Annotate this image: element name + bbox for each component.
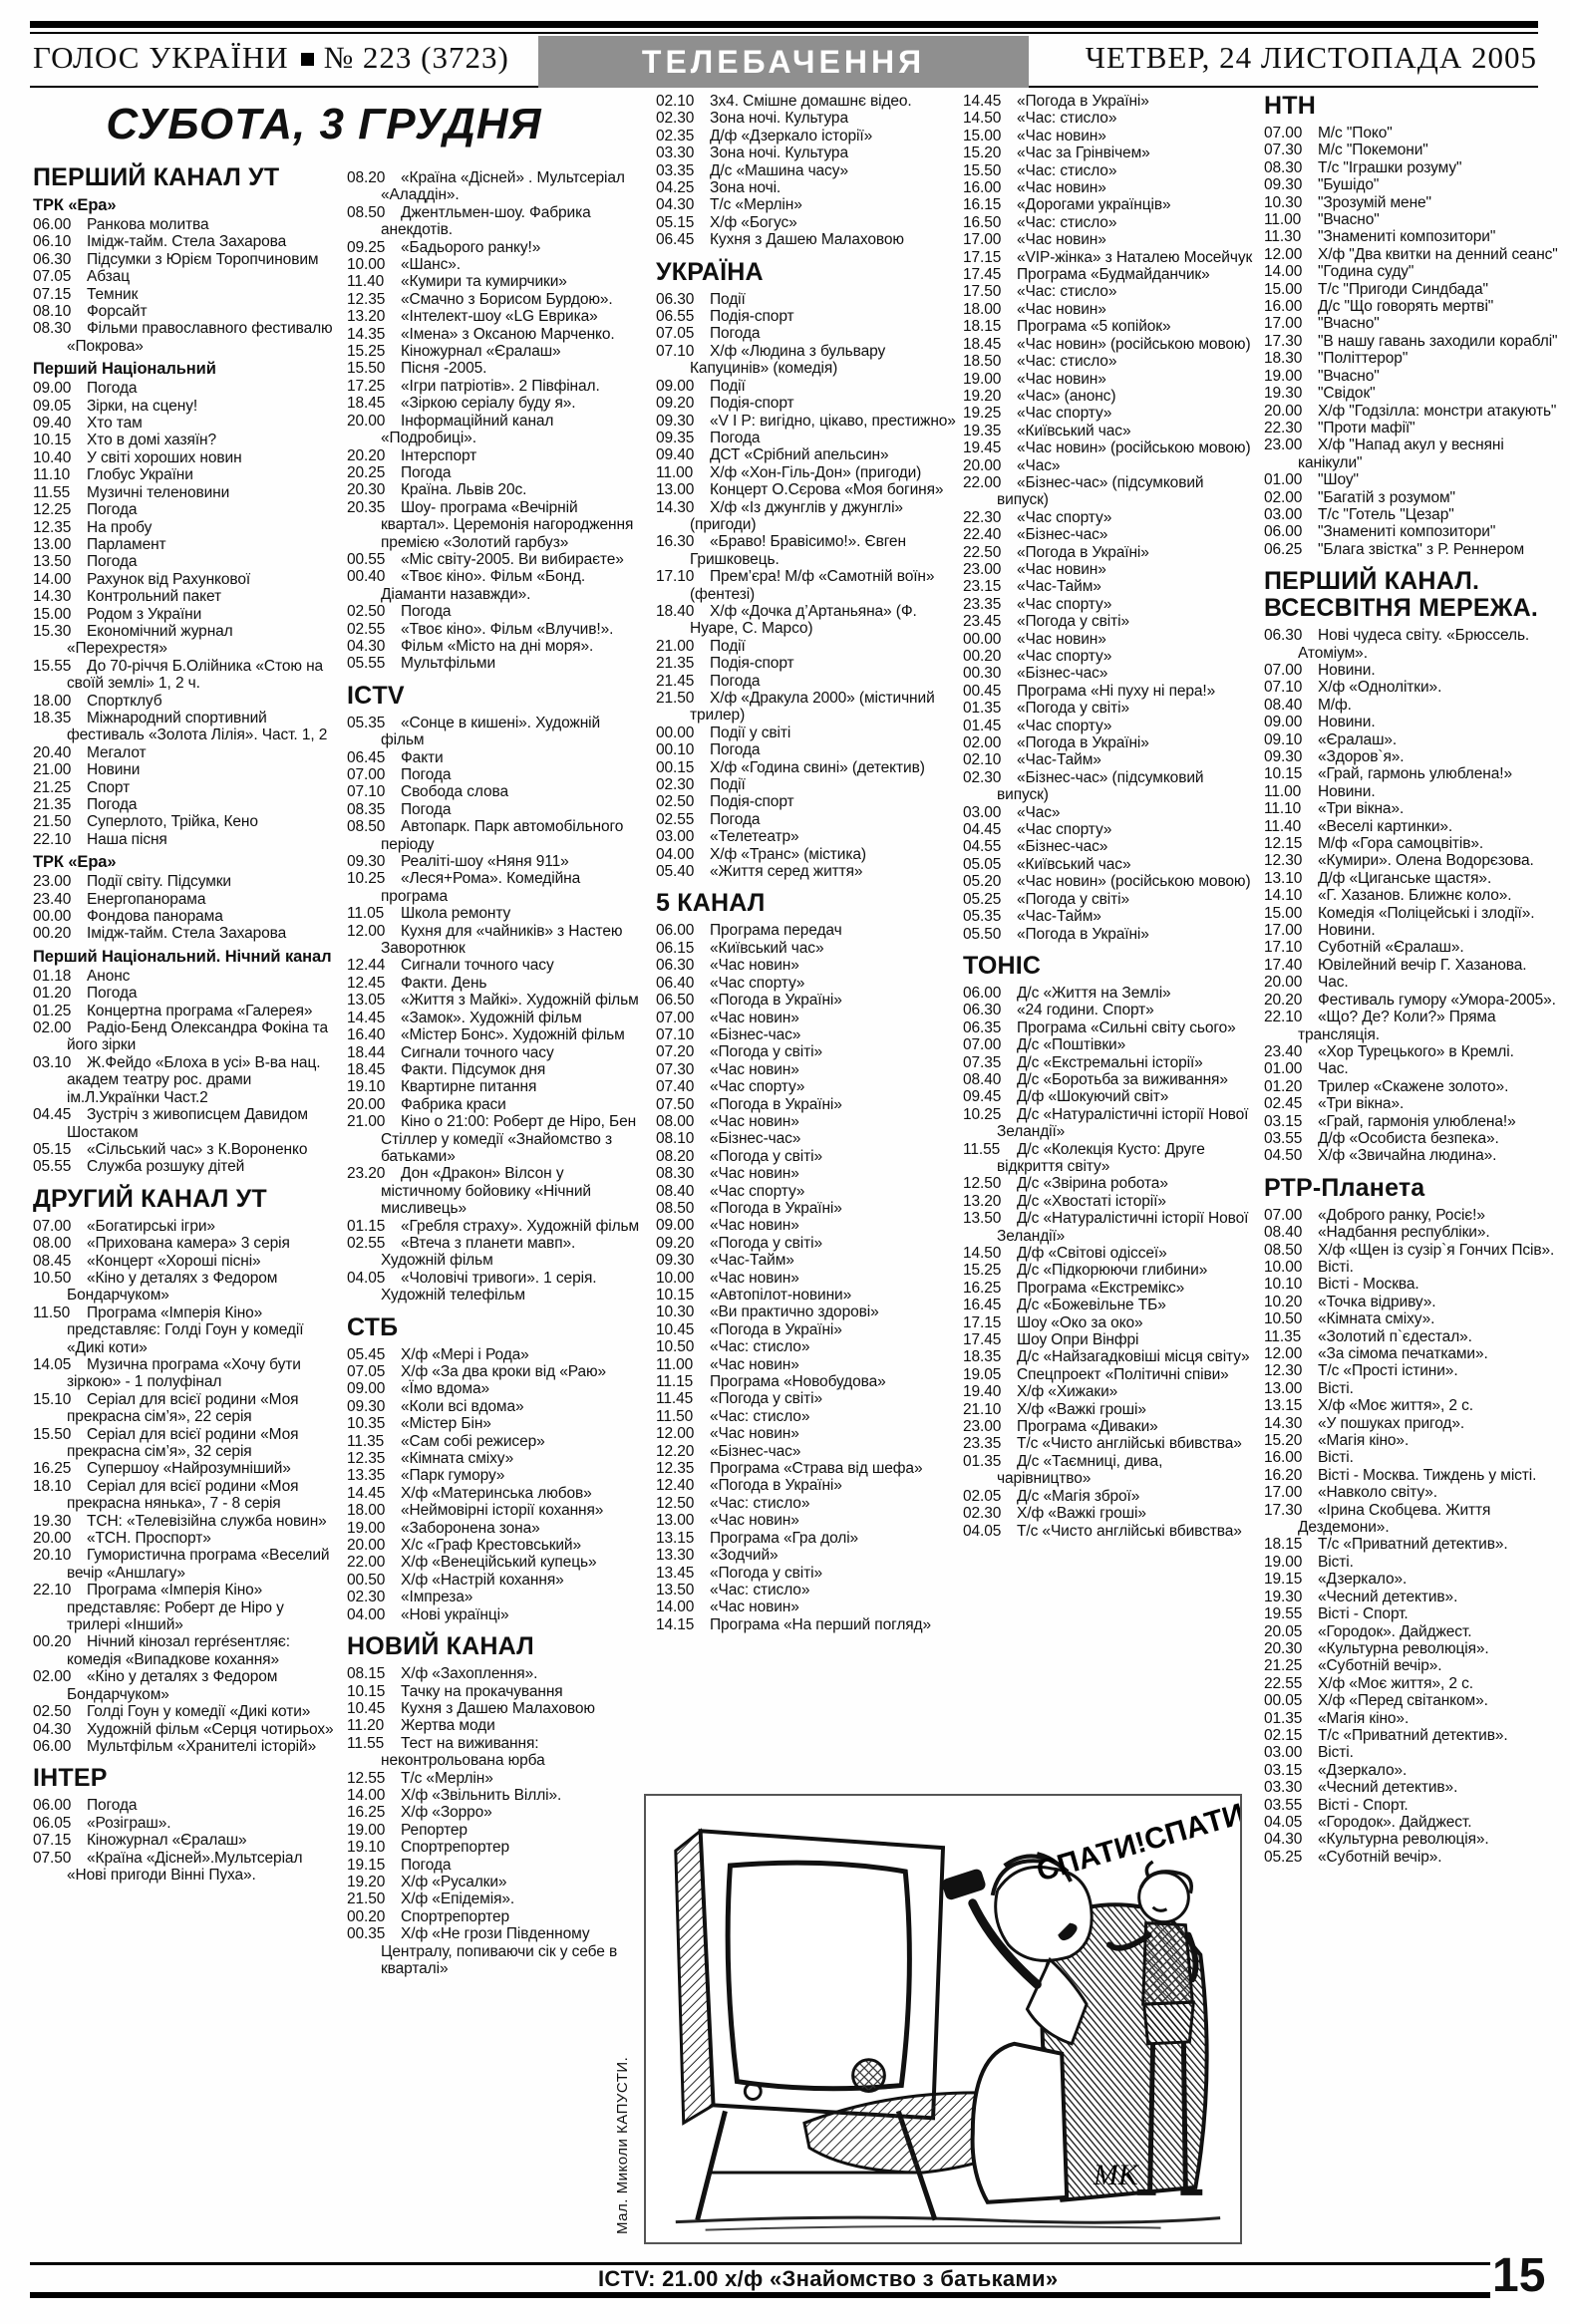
listing-time: 15.20 <box>1264 1432 1318 1449</box>
channel-header: 5 КАНАЛ <box>656 890 959 917</box>
listing-item: 16.00Д/с "Що говорять мертві" <box>1264 298 1565 315</box>
listing-time: 06.30 <box>33 251 87 268</box>
listing-title: Суперлото, Трійка, Кено <box>87 813 258 830</box>
listing-time: 12.30 <box>1264 1362 1318 1379</box>
listing-item: 07.00«Богатирські ігри» <box>33 1218 336 1235</box>
listing-time: 10.50 <box>33 1270 87 1287</box>
listing-time: 01.00 <box>1264 1060 1318 1077</box>
listing-item: 08.10«Бізнес-час» <box>656 1130 959 1147</box>
listing-item: 02.00«Кіно у деталях з Федором Бондарчук… <box>33 1668 336 1703</box>
listing-time: 13.20 <box>347 308 401 325</box>
listing-item: 08.45«Концерт «Хороші пісні» <box>33 1253 336 1270</box>
listing-item: 12.35«Кімната сміху» <box>347 1450 643 1467</box>
listing-time: 15.25 <box>963 1262 1017 1279</box>
listing-title: Програма «Новобудова» <box>710 1373 886 1390</box>
listing-title: Імідж-тайм. Стела Захарова <box>87 233 286 250</box>
listing-time: 22.00 <box>963 474 1017 491</box>
listing-time: 09.10 <box>1264 731 1318 748</box>
listing-title: Наша пісня <box>87 831 167 848</box>
listing-title: «Г. Хазанов. Ближнє коло». <box>1318 887 1512 904</box>
listing-title: «Точка відриву». <box>1318 1294 1435 1310</box>
listing-item: 01.35Д/с «Таємниці, дива, чарівництво» <box>963 1453 1256 1488</box>
listing-title: «Чоловічі тривоги». 1 серія. Художній те… <box>381 1270 596 1304</box>
listing-title: Х/ф «Епідемія». <box>401 1890 514 1907</box>
listing-item: 21.35Подія-спорт <box>656 655 959 672</box>
listing-item: 02.30Х/ф «Важкі гроші» <box>963 1505 1256 1522</box>
listing-title: Д/ф «Циганське щастя». <box>1318 870 1491 887</box>
listing-time: 22.30 <box>963 509 1017 526</box>
listing-item: 04.30Художній фільм «Серця чотирьох» <box>33 1721 336 1738</box>
listing-time: 17.15 <box>963 1314 1017 1331</box>
listing-time: 23.00 <box>33 873 87 890</box>
listing-time: 05.50 <box>963 926 1017 943</box>
listing-title: «Доброго ранку, Росіє!» <box>1318 1207 1485 1224</box>
listing-time: 00.20 <box>347 1908 401 1925</box>
listing-title: Інформаційний канал «Подробиці». <box>381 413 553 446</box>
listing-title: Програма «Ні пуху ні пера!» <box>1017 683 1215 700</box>
listing-title: «Містер Бонс». Художній фільм <box>401 1026 625 1043</box>
listing-title: «Культурна революція». <box>1318 1831 1489 1848</box>
listing-time: 07.50 <box>656 1096 710 1113</box>
listing-item: 10.25«Леся+Рома». Комедійна програма <box>347 870 643 905</box>
listing-item: 20.35Шоу- програма «Вечірній квартал». Ц… <box>347 499 643 551</box>
cartoon-illustration: СПАТИ!СПАТИ! МК <box>646 1796 1240 2242</box>
listing-title: «Дзеркало». <box>1318 1571 1407 1588</box>
listing-title: Абзац <box>87 268 130 285</box>
listing-title: «Час новин» <box>710 1512 799 1529</box>
listing-title: «Час новин» <box>1017 371 1106 388</box>
listing-item: 15.25Д/с «Підкорюючи глибини» <box>963 1262 1256 1279</box>
listing-time: 20.20 <box>1264 992 1318 1009</box>
listing-item: 17.40Ювілейний вечір Г. Хазанова. <box>1264 957 1565 974</box>
listing-time: 17.00 <box>963 231 1017 248</box>
listing-item: 01.35«Магія кіно». <box>1264 1710 1565 1727</box>
listing-title: Програма «Будмайданчик» <box>1017 266 1210 283</box>
listing-time: 10.30 <box>656 1304 710 1320</box>
listing-time: 23.35 <box>963 1435 1017 1452</box>
listing-title: «Країна «Дісней» . Мультсеріал «Аладдін»… <box>381 169 625 203</box>
listing-item: 23.40Енергопанорама <box>33 891 336 908</box>
listing-time: 09.30 <box>1264 176 1318 193</box>
listing-item: 19.00«Час новин» <box>963 371 1256 388</box>
listing-time: 14.30 <box>33 588 87 605</box>
listing-title: «Час спорту» <box>710 975 804 992</box>
listing-time: 21.00 <box>33 761 87 778</box>
listing-time: 12.30 <box>1264 852 1318 869</box>
listing-title: «Браво! Бравісимо!». Євген Гришковець. <box>690 533 906 567</box>
listing-time: 01.35 <box>963 700 1017 717</box>
listing-title: Тест на виживання: неконтрольована юрба <box>381 1735 545 1769</box>
listing-item: 11.15Програма «Новобудова» <box>656 1373 959 1390</box>
listing-title: «Час новин» <box>710 1113 799 1130</box>
listing-title: «Погода в Україні» <box>1017 926 1149 943</box>
listing-title: На пробу <box>87 519 152 536</box>
listing-title: «Бадьорого ранку!» <box>401 239 540 256</box>
listing-title: Контрольний пакет <box>87 588 221 605</box>
listing-item: 08.30Т/с "Іграшки розуму" <box>1264 159 1565 176</box>
footer-highlight-band: ICTV: 21.00 х/ф «Знайомство з батьками» <box>30 2262 1490 2298</box>
listing-title: Д/с «Колекція Кусто: Друге відкриття сві… <box>997 1141 1205 1175</box>
listing-time: 05.25 <box>963 891 1017 908</box>
listing-item: 01.45«Час спорту» <box>963 718 1256 734</box>
listing-title: Програма «Імперія Кіно» представляє: Гол… <box>67 1305 303 1356</box>
listing-time: 22.10 <box>33 831 87 848</box>
listing-time: 00.35 <box>347 1925 401 1942</box>
listing-title: Нові чудеса світу. «Брюссель. Атоміум». <box>1298 627 1529 661</box>
listing-item: 07.05Погода <box>656 325 959 342</box>
listing-title: Ранкова молитва <box>87 216 209 233</box>
listing-time: 02.55 <box>347 621 401 638</box>
listing-time: 04.05 <box>347 1270 401 1287</box>
listing-title: Спорт <box>87 779 130 796</box>
listing-time: 10.15 <box>1264 765 1318 782</box>
listing-title: Т/с «Мерлін» <box>401 1770 493 1787</box>
listing-title: «Час новин» <box>1017 128 1106 145</box>
listing-time: 08.20 <box>656 1148 710 1165</box>
listing-title: «Погода у світі» <box>710 1565 822 1582</box>
listing-time: 14.35 <box>347 326 401 343</box>
listing-title: Подія-спорт <box>710 395 794 412</box>
listing-time: 10.45 <box>347 1700 401 1717</box>
listing-time: 11.35 <box>347 1433 401 1450</box>
listing-item: 13.50«Час: стисло» <box>656 1582 959 1598</box>
listing-item: 20.00Час. <box>1264 974 1565 991</box>
listing-time: 14.50 <box>963 1245 1017 1262</box>
listing-title: Художній фільм «Серця чотирьох» <box>87 1721 334 1738</box>
listing-item: 21.50Суперлото, Трійка, Кено <box>33 813 336 830</box>
listing-time: 17.40 <box>1264 957 1318 974</box>
listing-time: 11.50 <box>33 1305 87 1321</box>
listing-item: 15.00«Час новин» <box>963 128 1256 145</box>
listing-time: 14.50 <box>963 110 1017 127</box>
listing-time: 02.30 <box>347 1589 401 1605</box>
listing-time: 21.35 <box>656 655 710 672</box>
listing-title: Х/с «Граф Крестовський» <box>401 1537 581 1554</box>
listing-time: 00.00 <box>33 908 87 925</box>
listing-item: 07.50«Країна «Дісней».Мультсеріал «Нові … <box>33 1850 336 1885</box>
listing-item: 15.00Родом з України <box>33 606 336 623</box>
listing-item: 05.25«Погода у світі» <box>963 891 1256 908</box>
listing-time: 08.35 <box>347 801 401 818</box>
listing-time: 22.00 <box>347 1554 401 1571</box>
listing-time: 02.35 <box>656 128 710 145</box>
listing-title: Д/ф «Особиста безпека». <box>1318 1130 1499 1147</box>
listing-title: «Коли всі вдома» <box>401 1398 524 1415</box>
listing-item: 09.25«Бадьорого ранку!» <box>347 239 643 256</box>
listing-item: 08.35Погода <box>347 801 643 818</box>
listing-time: 04.30 <box>347 638 401 655</box>
listing-time: 19.00 <box>347 1520 401 1537</box>
listing-item: 11.40«Кумири та кумирчики» <box>347 273 643 290</box>
listing-title: Кухня для «чайників» з Настею Заворотнюк <box>381 923 622 957</box>
listing-time: 09.20 <box>656 395 710 412</box>
listing-item: 17.25«Ігри патріотів». 2 Півфінал. <box>347 378 643 395</box>
listing-item: 10.00«Час новин» <box>656 1270 959 1287</box>
listing-time: 12.50 <box>656 1495 710 1512</box>
listing-item: 20.30«Культурна революція». <box>1264 1640 1565 1657</box>
listing-title: «Час: стисло» <box>710 1495 809 1512</box>
listing-item: 22.00Х/ф «Венеційський купець» <box>347 1554 643 1571</box>
listing-item: 04.05«Чоловічі тривоги». 1 серія. Художн… <box>347 1270 643 1305</box>
listing-item: 14.00"Година суду" <box>1264 263 1565 280</box>
listing-time: 21.35 <box>33 796 87 813</box>
listing-title: Шоу Опри Вінфрі <box>1017 1331 1138 1348</box>
listing-time: 00.20 <box>33 1633 87 1650</box>
listing-item: 11.00«Час новин» <box>656 1356 959 1373</box>
listing-title: «Час новин» <box>710 1598 799 1615</box>
listing-item: 09.30«Здоров`я». <box>1264 748 1565 765</box>
channel-header: РТР-Планета <box>1264 1175 1565 1202</box>
listing-title: Трилер «Скажене золото». <box>1318 1078 1508 1095</box>
listing-title: Кухня з Дашею Малаховою <box>401 1700 595 1717</box>
listing-title: «Погода в Україні» <box>710 1477 842 1494</box>
listing-item: 19.15Погода <box>347 1857 643 1874</box>
listing-item: 09.00Новини. <box>1264 714 1565 730</box>
listing-title: Супершоу «Найрозумніший» <box>87 1460 291 1477</box>
listing-time: 07.10 <box>656 1026 710 1043</box>
listing-time: 10.15 <box>656 1287 710 1304</box>
listing-time: 23.35 <box>963 596 1017 613</box>
listing-time: 21.50 <box>347 1890 401 1907</box>
section-subheader: ТРК «Ера» <box>33 196 336 214</box>
listings-column-1: ПЕРШИЙ КАНАЛ УТТРК «Ера»06.00Ранкова мол… <box>33 164 336 1884</box>
listing-item: 21.00Новини <box>33 761 336 778</box>
listing-title: «Бізнес-час» <box>1017 526 1107 543</box>
listing-title: Вісті. <box>1318 1380 1354 1397</box>
listing-title: Комедія «Поліцейські і злодії». <box>1318 905 1534 922</box>
listing-item: 07.30«Час новин» <box>656 1061 959 1078</box>
listing-time: 05.20 <box>963 873 1017 890</box>
listing-title: «VIP-жінка» з Наталею Мосейчук <box>1017 249 1252 266</box>
listing-item: 13.00Вісті. <box>1264 1380 1565 1397</box>
listing-item: 04.50Х/ф «Звичайна людина». <box>1264 1147 1565 1164</box>
listing-title: «Золотий п`єдестал». <box>1318 1328 1472 1345</box>
listing-item: 19.00«Заборонена зона» <box>347 1520 643 1537</box>
listing-title: «Час новин» <box>710 1270 799 1287</box>
listing-title: Фільм «Місто на дні моря». <box>401 638 593 655</box>
listing-item: 07.15Кіножурнал «Єралаш» <box>33 1832 336 1849</box>
listing-title: Х/ф «Однолітки». <box>1318 679 1441 696</box>
listing-item: 09.10«Єралаш». <box>1264 731 1565 748</box>
listing-title: Глобус України <box>87 466 193 483</box>
listing-title: Х/ф «Звичайна людина». <box>1318 1147 1496 1164</box>
listing-time: 19.55 <box>1264 1605 1318 1622</box>
listing-time: 09.40 <box>656 446 710 463</box>
listing-item: 07.00Д/с «Поштівки» <box>963 1036 1256 1053</box>
listing-title: «Час: стисло» <box>1017 110 1116 127</box>
listing-title: «Час новин» <box>710 1356 799 1373</box>
listing-time: 21.25 <box>33 779 87 796</box>
listing-item: 17.10Суботній «Єралаш». <box>1264 939 1565 956</box>
listing-title: Темник <box>87 286 138 303</box>
listing-time: 11.45 <box>656 1390 710 1407</box>
listing-title: Новини. <box>1318 922 1376 939</box>
listing-time: 13.50 <box>656 1582 710 1598</box>
listing-time: 18.00 <box>347 1502 401 1519</box>
listing-title: «Грай, гармонь улюблена!» <box>1318 765 1512 782</box>
listing-item: 20.25Погода <box>347 464 643 481</box>
listing-title: Пісня -2005. <box>401 360 486 377</box>
listing-time: 15.30 <box>33 623 87 640</box>
listing-item: 18.35Міжнародний спортивний фестиваль «З… <box>33 710 336 744</box>
listing-item: 07.10Х/ф «Однолітки». <box>1264 679 1565 696</box>
listing-title: «Зодчий» <box>710 1547 779 1564</box>
viewer-figure <box>941 1854 1093 2044</box>
listing-title: М/с "Покемони" <box>1318 142 1428 158</box>
listing-item: 07.00«Доброго ранку, Росіє!» <box>1264 1207 1565 1224</box>
listing-time: 06.55 <box>656 308 710 325</box>
listing-item: 09.30Реаліті-шоу «Няня 911» <box>347 853 643 870</box>
listing-time: 06.00 <box>1264 523 1318 540</box>
listing-item: 09.30«V I P: вигідно, цікаво, престижно» <box>656 413 959 430</box>
listing-item: 18.15Т/с «Приватний детектив». <box>1264 1536 1565 1553</box>
top-rule-thin <box>30 32 1538 34</box>
listing-item: 15.10Серіал для всієї родини «Моя прекра… <box>33 1391 336 1426</box>
listing-item: 07.00Новини. <box>1264 662 1565 679</box>
listing-title: Т/с «Приватний детектив». <box>1318 1727 1508 1744</box>
listing-item: 06.00Ранкова молитва <box>33 216 336 233</box>
listing-time: 21.25 <box>1264 1657 1318 1674</box>
listing-item: 16.15«Дорогами українців» <box>963 196 1256 213</box>
listing-time: 04.50 <box>1264 1147 1318 1164</box>
listing-item: 19.30«Чесний детектив». <box>1264 1589 1565 1605</box>
listing-item: 16.45Д/с «Божевільне ТБ» <box>963 1297 1256 1313</box>
listing-item: 15.00Т/с "Пригоди Синдбада" <box>1264 281 1565 298</box>
listing-title: Х/ф «Людина з бульвару Капуцинів» (комед… <box>690 343 885 377</box>
listing-item: 02.50Голді Гоун у комедії «Дикі коти» <box>33 1703 336 1720</box>
listing-item: 19.05Спецпроект «Політичні співи» <box>963 1366 1256 1383</box>
listing-title: «Київський час» <box>710 940 823 957</box>
listing-time: 13.00 <box>656 1512 710 1529</box>
listing-title: «Час спорту» <box>1017 509 1111 526</box>
listing-item: 08.50Х/ф «Щен із сузір`я Гончих Псів». <box>1264 1242 1565 1259</box>
listing-item: 10.25Д/с «Натуралістичні історії Нової З… <box>963 1106 1256 1141</box>
listing-item: 06.00Д/с «Життя на Землі» <box>963 985 1256 1002</box>
listing-item: 03.00«Телетеатр» <box>656 828 959 845</box>
listing-item: 12.25Погода <box>33 501 336 518</box>
listing-time: 05.25 <box>1264 1849 1318 1866</box>
listing-time: 13.10 <box>1264 870 1318 887</box>
listing-time: 16.25 <box>963 1280 1017 1297</box>
listing-item: 12.15М/ф «Гора самоцвітів». <box>1264 835 1565 852</box>
listing-title: «Кумири». Олена Водорєзова. <box>1318 852 1534 869</box>
listing-time: 01.20 <box>33 985 87 1002</box>
listing-title: Т/с "Готель "Цезар" <box>1318 506 1454 523</box>
listing-item: 10.50«Час: стисло» <box>656 1338 959 1355</box>
listing-time: 10.00 <box>347 256 401 273</box>
listing-item: 17.45Шоу Опри Вінфрі <box>963 1331 1256 1348</box>
listing-title: «Чесний детектив». <box>1318 1589 1457 1605</box>
listing-title: Форсайт <box>87 303 147 320</box>
listing-item: 19.10Квартирне питання <box>347 1078 643 1095</box>
listing-title: «Час спорту» <box>710 1078 804 1095</box>
listing-item: 10.50«Кіно у деталях з Федором Бондарчук… <box>33 1270 336 1305</box>
listing-time: 02.50 <box>33 1703 87 1720</box>
listing-time: 17.00 <box>1264 1484 1318 1501</box>
listing-time: 19.00 <box>963 371 1017 388</box>
listing-item: 07.50«Погода в Україні» <box>656 1096 959 1113</box>
listing-time: 13.05 <box>347 992 401 1009</box>
listing-title: "Свідок" <box>1318 385 1376 402</box>
listing-time: 17.30 <box>1264 1502 1318 1519</box>
listing-time: 11.10 <box>33 466 87 483</box>
listing-title: «Час-Тайм» <box>1017 751 1101 768</box>
listing-time: 05.55 <box>33 1158 87 1175</box>
listing-item: 09.20«Погода у світі» <box>656 1235 959 1252</box>
listing-item: 17.50«Час: стисло» <box>963 283 1256 300</box>
listing-time: 20.30 <box>347 481 401 498</box>
listing-time: 15.00 <box>963 128 1017 145</box>
listing-time: 10.40 <box>33 449 87 466</box>
listing-item: 05.35«Сонце в кишені». Художній фільм <box>347 715 643 749</box>
listing-time: 16.45 <box>963 1297 1017 1313</box>
listing-title: Кіно о 21:00: Роберт де Ніро, Бен Стілле… <box>381 1113 636 1165</box>
listing-title: «Погода у світі» <box>1017 613 1129 630</box>
listing-item: 12.30Т/с «Прості істини». <box>1264 1362 1565 1379</box>
listing-item: 16.20Вісті - Москва. Тиждень у місті. <box>1264 1467 1565 1484</box>
listing-item: 22.00«Бізнес-час» (підсумковий випуск) <box>963 474 1256 509</box>
listing-title: «Час новин» (російською мовою) <box>1017 336 1251 353</box>
listing-title: Т/с «Приватний детектив». <box>1318 1536 1508 1553</box>
listing-item: 11.50Програма «Імперія Кіно» представляє… <box>33 1305 336 1356</box>
listing-title: «Час: стисло» <box>1017 214 1116 231</box>
listing-time: 19.25 <box>963 405 1017 422</box>
listing-title: Події <box>710 378 746 395</box>
listing-item: 12.44Сигнали точного часу <box>347 957 643 974</box>
listing-time: 19.20 <box>347 1874 401 1890</box>
listing-time: 18.50 <box>963 353 1017 370</box>
listing-title: «Магія кіно». <box>1318 1710 1409 1727</box>
listing-time: 10.10 <box>1264 1276 1318 1293</box>
listing-title: Програма «Гра долі» <box>710 1530 858 1547</box>
listing-item: 14.35«Імена» з Оксаною Марченко. <box>347 326 643 343</box>
listing-title: Зона ночі. Культура <box>710 145 848 161</box>
listing-time: 19.45 <box>963 439 1017 456</box>
listing-time: 00.20 <box>33 925 87 942</box>
listing-title: «Автопілот-новини» <box>710 1287 851 1304</box>
listing-time: 02.10 <box>963 751 1017 768</box>
listing-title: Д/с «Магія зброї» <box>1017 1488 1139 1505</box>
listing-item: 04.45Зустріч з живописцем Давидом Шостак… <box>33 1106 336 1141</box>
listing-title: Х/ф «Настрій кохання» <box>401 1572 564 1589</box>
listing-title: Тачку на прокачування <box>401 1683 563 1700</box>
listing-title: "Проти мафії" <box>1318 420 1415 436</box>
listing-item: 05.55Мультфільми <box>347 655 643 672</box>
listing-time: 08.10 <box>33 303 87 320</box>
listing-time: 07.00 <box>33 1218 87 1235</box>
channel-header: ДРУГИЙ КАНАЛ УТ <box>33 1186 336 1213</box>
listing-time: 06.25 <box>1264 541 1318 558</box>
listing-item: 10.35«Містер Бін» <box>347 1415 643 1432</box>
listing-title: Сигнали точного часу <box>401 1044 554 1061</box>
listing-time: 07.30 <box>1264 142 1318 158</box>
listing-time: 09.05 <box>33 398 87 415</box>
listing-title: «Час новин» <box>1017 631 1106 648</box>
listing-time: 12.00 <box>1264 1345 1318 1362</box>
listing-item: 11.30"Знамениті композитори" <box>1264 228 1565 245</box>
listing-item: 06.00"Знамениті композитори" <box>1264 523 1565 540</box>
listing-time: 00.05 <box>1264 1692 1318 1709</box>
listing-time: 09.30 <box>656 413 710 430</box>
listing-item: 19.25«Час спорту» <box>963 405 1256 422</box>
listing-title: Х/ф «Звільнить Віллі». <box>401 1787 561 1804</box>
listing-time: 08.00 <box>33 1235 87 1252</box>
listing-item: 15.50«Час: стисло» <box>963 162 1256 179</box>
listing-time: 00.00 <box>656 725 710 741</box>
listing-time: 06.00 <box>963 985 1017 1002</box>
listing-item: 13.15Х/ф «Моє життя», 2 с. <box>1264 1397 1565 1414</box>
listing-title: «Погода в Україні» <box>1017 544 1149 561</box>
